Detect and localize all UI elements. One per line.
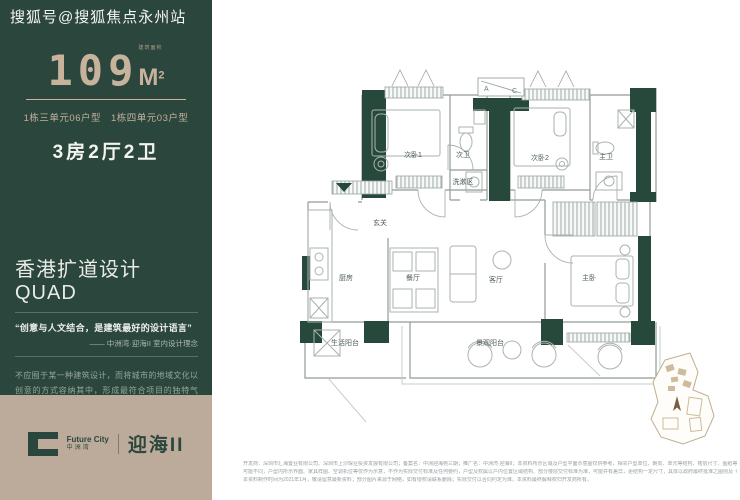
stool-bedroom2 (556, 158, 568, 170)
room-label-foyer: 玄关 (373, 218, 387, 227)
toilet-secondary-bath (460, 133, 472, 151)
divider-line (15, 356, 198, 357)
design-title: 香港扩道设计QUAD (15, 253, 198, 305)
divider-line (15, 312, 198, 313)
ac-platform: A C (478, 78, 524, 96)
dining-chair (416, 289, 435, 308)
kitchen-sink (310, 298, 328, 318)
room-label-living: 客厅 (489, 275, 503, 284)
watermark-text: 搜狐号@搜狐焦点永州站 (10, 6, 186, 27)
room-label-bedroom1: 次卧1 (404, 150, 422, 159)
area-value: 109 (48, 46, 139, 95)
logo-divider (118, 434, 119, 454)
area-title-block: 109M2 建筑面积 1栋三单元06户型1栋四单元03户型 3房2厅2卫 (0, 50, 212, 164)
room-label-master: 主卧 (582, 273, 596, 282)
disclaimer: 开发商：深圳市汇海置业有限公司、深圳市上沙琛业投资发展有限公司；备案名：中洲迎海… (243, 461, 737, 484)
dining-chair (393, 289, 412, 308)
toilet-master-bath (596, 142, 614, 154)
room-label-bedroom2: 次卧2 (531, 153, 549, 162)
room-label-master-bath: 主卫 (599, 152, 613, 161)
unit-info-b: 1栋四单元03户型 (111, 113, 188, 124)
nightstand-marker (620, 245, 630, 255)
room-label-view-balcony: 景观阳台 (476, 338, 504, 347)
unit-info-a: 1栋三单元06户型 (24, 113, 101, 124)
area-superscript: 2 (158, 70, 164, 82)
room-label-wash-area: 洗漱区 (453, 177, 474, 186)
ac-label-c: C (512, 88, 517, 95)
pillow-master (616, 283, 629, 303)
dining-chair (393, 252, 412, 271)
disclaimer-line: 开发商：深圳市汇海置业有限公司、深圳市上沙琛业投资发展有限公司；备案名：中洲迎海… (243, 461, 737, 469)
room-label-utility-balcony: 生活阳台 (331, 338, 359, 347)
unit-info-line: 1栋三单元06户型1栋四单元03户型 (0, 110, 212, 124)
room-label-secondary-bath: 次卫 (456, 150, 470, 159)
furniture (308, 108, 634, 369)
balcony-chair (598, 345, 622, 369)
sink-secondary-bath (474, 110, 485, 124)
pillow-bedroom2 (554, 112, 566, 136)
disclaimer-line: 可能不同，户型内所示界面、家具样图、空调机位等仅作为示意，不作为实际交付标准及任… (243, 469, 737, 477)
balcony-chair (532, 343, 556, 367)
balcony-table (503, 341, 521, 359)
title-underline (26, 99, 186, 100)
brand-text-column: Future City 中洲湾 (67, 435, 109, 452)
left-info-panel: 搜狐号@搜狐焦点永州站 109M2 建筑面积 1栋三单元06户型1栋四单元03户… (0, 0, 212, 395)
floor-plan: A C (300, 60, 740, 465)
poster: 搜狐号@搜狐焦点永州站 109M2 建筑面积 1栋三单元06户型1栋四单元03户… (0, 0, 740, 500)
room-label-kitchen: 厨房 (339, 273, 353, 282)
side-table (493, 251, 511, 269)
area-note: 建筑面积 (138, 46, 162, 51)
brand-en: Future City (67, 435, 109, 445)
futurecity-c-logo-icon (28, 432, 58, 456)
brand-cn: 中洲湾 (67, 445, 109, 452)
room-label-dining: 餐厅 (406, 273, 420, 282)
area-unit: M (138, 64, 158, 91)
nightstand-marker (620, 307, 630, 317)
product-name: 迎海II (128, 430, 185, 457)
shower-master-bath (618, 110, 634, 128)
ac-label-a: A (484, 86, 489, 93)
vanity-master-bath (596, 172, 622, 190)
design-quote: “创意与人文结合，是建筑最好的设计语言” (15, 321, 198, 334)
room-layout-text: 3房2厅2卫 (0, 137, 212, 164)
design-quote-source: —— 中洲湾·迎海II 室内设计理念 (15, 338, 198, 349)
disclaimer-line: 本资料制作时间为2021年1月，敬请留意最新资料；部分图片来源于网络，如有侵权请… (243, 477, 737, 485)
area-line: 109M2 建筑面积 (48, 50, 165, 92)
dining-chair (416, 252, 435, 271)
brand-logo-row: Future City 中洲湾 迎海II (0, 430, 212, 457)
bed-master (571, 256, 633, 306)
pillow-master (616, 259, 629, 279)
